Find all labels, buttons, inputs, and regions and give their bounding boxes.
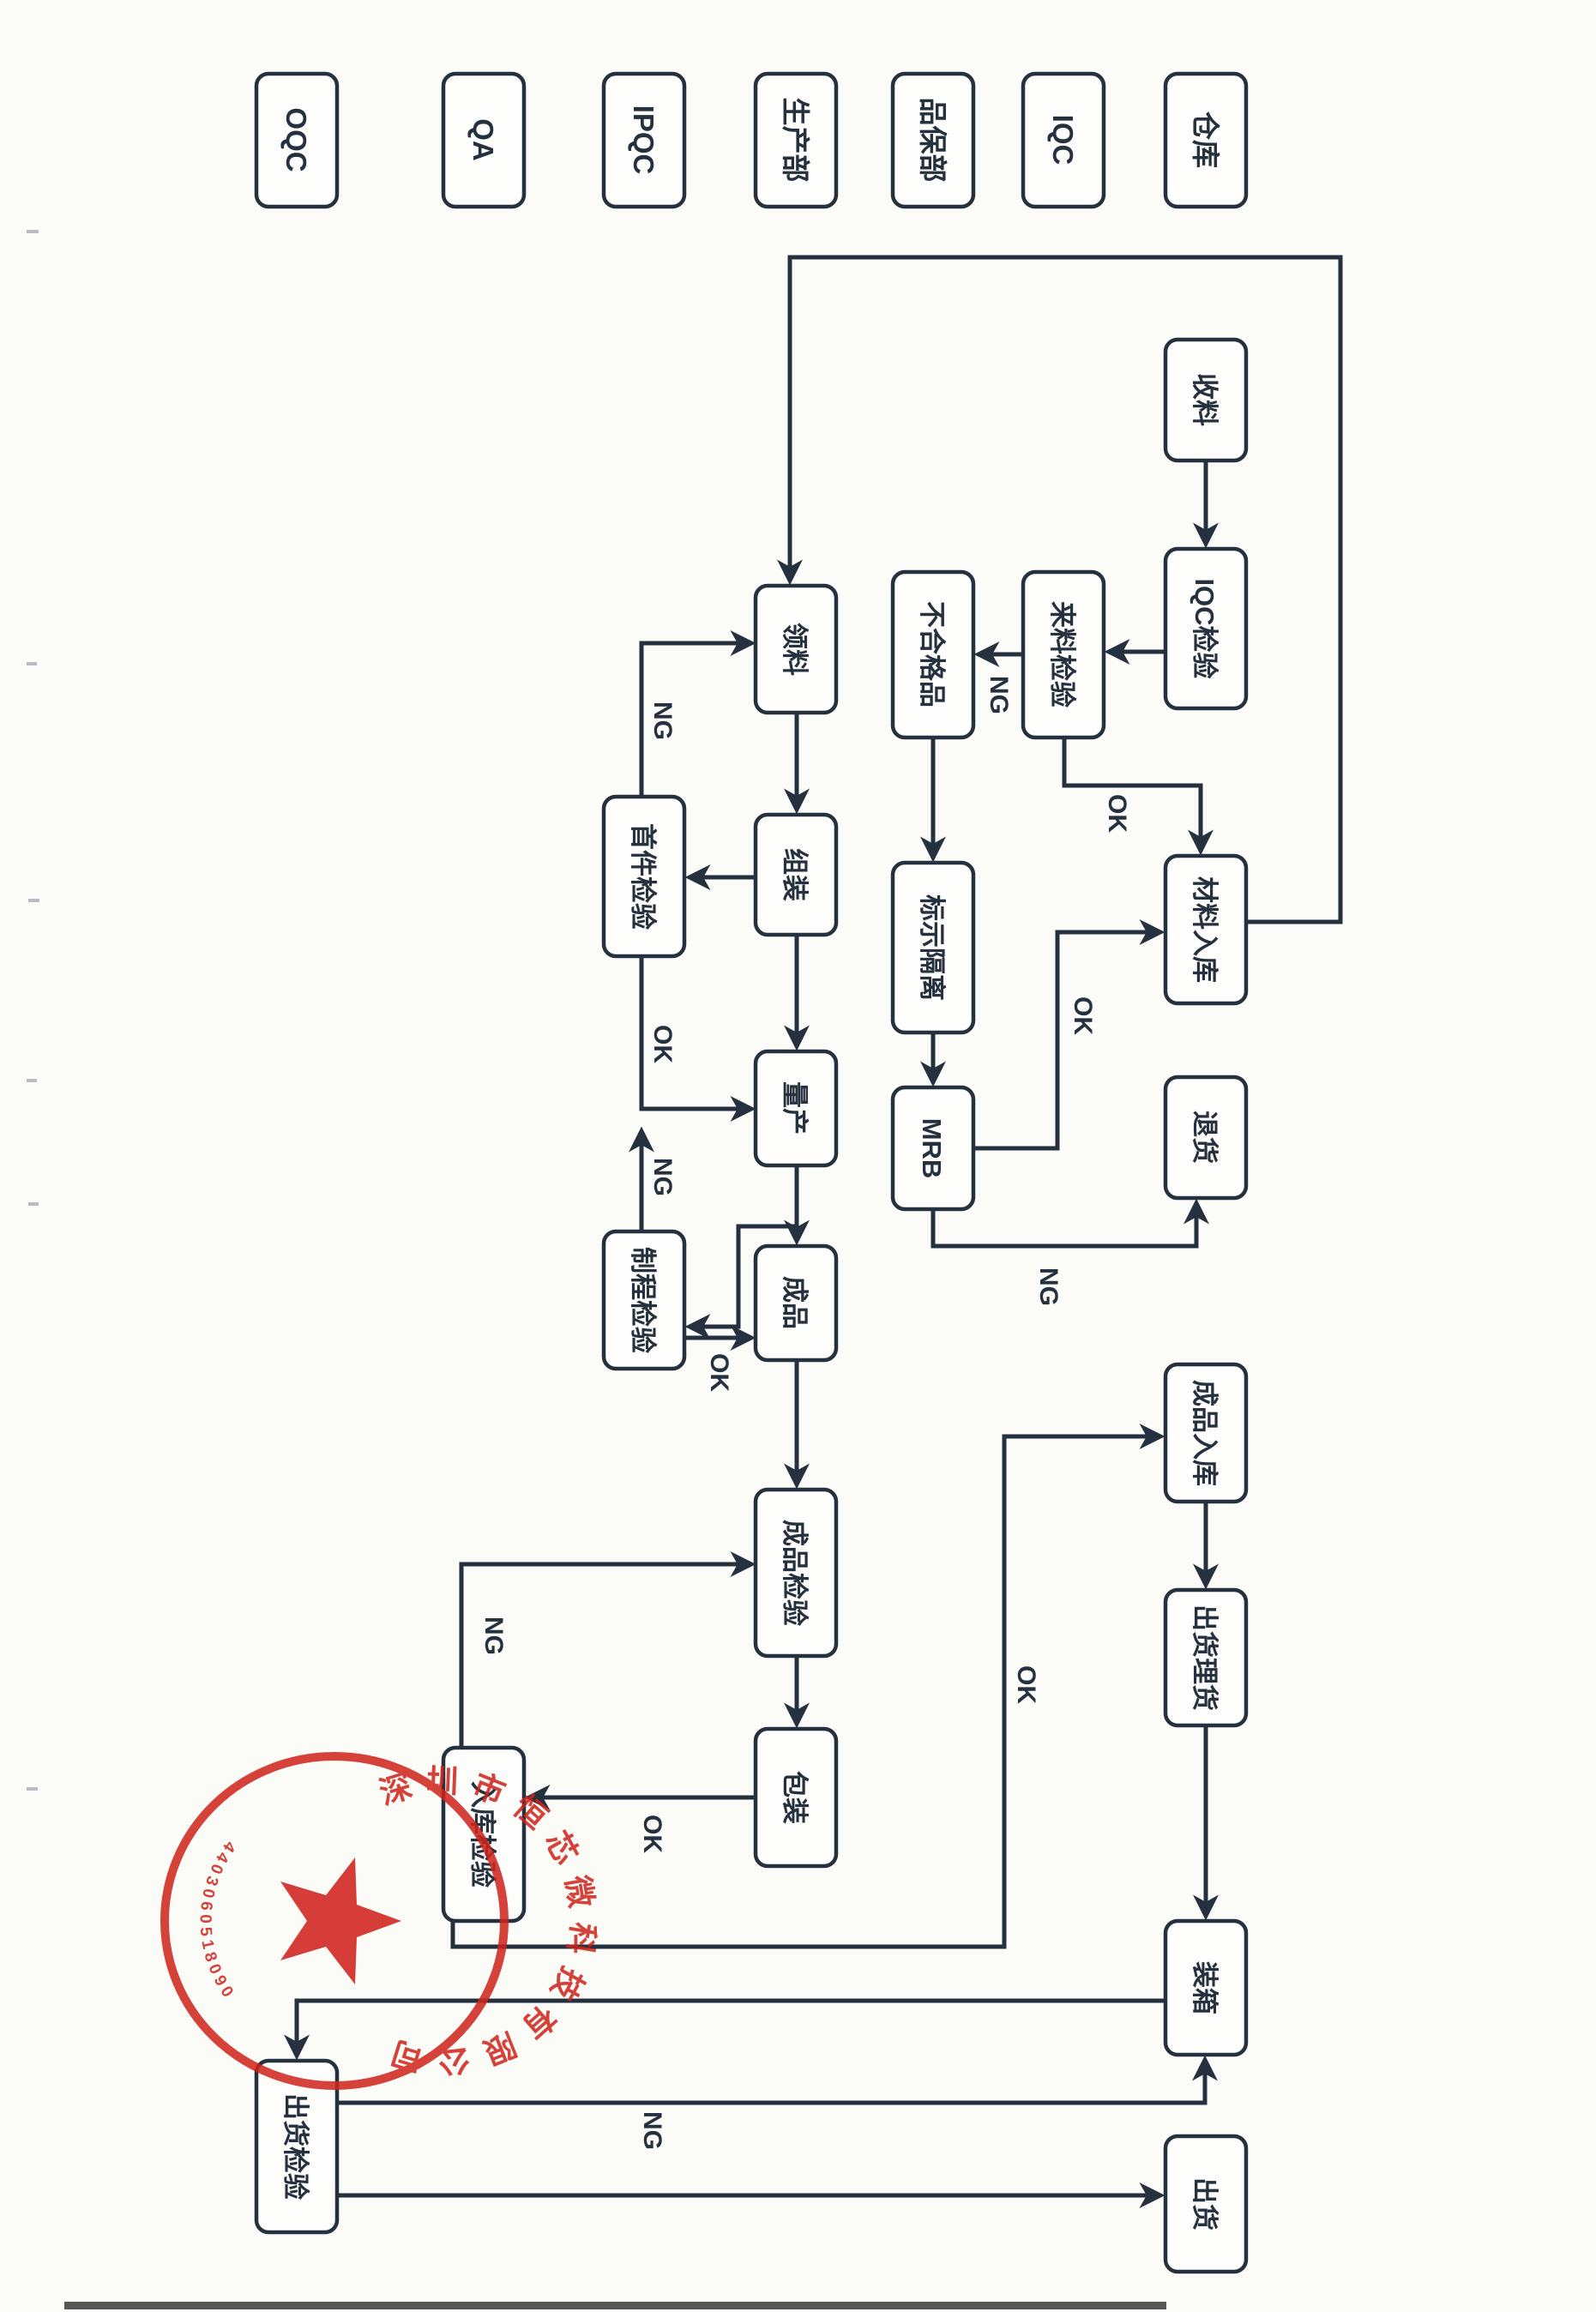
node-nonconforming-product: 不合格品 xyxy=(893,572,973,738)
node-material-warehousing: 材料入库 xyxy=(1165,856,1246,1003)
svg-text:IQC检验: IQC检验 xyxy=(1189,578,1220,678)
node-finished-product-inspection: 成品检验 xyxy=(756,1490,836,1656)
lane-header-warehouse: 仓库 xyxy=(1165,74,1246,207)
svg-text:材料入库: 材料入库 xyxy=(1189,876,1220,983)
label-incoming-ng: NG xyxy=(985,676,1013,714)
label-inprocess-ng: NG xyxy=(648,1158,677,1196)
svg-text:出货检验: 出货检验 xyxy=(280,2093,310,2200)
lane-header-production-dept: 生产部 xyxy=(756,74,836,207)
lane-header-iqc: IQC xyxy=(1023,74,1104,207)
node-finished-product: 成品 xyxy=(756,1246,836,1360)
svg-text:出货理货: 出货理货 xyxy=(1189,1605,1220,1711)
node-assembly: 组装 xyxy=(756,815,836,935)
label-first-article-ok: OK xyxy=(648,1025,677,1063)
svg-text:IPQC: IPQC xyxy=(628,105,659,175)
node-shipping-tally: 出货理货 xyxy=(1165,1590,1246,1725)
flow-nodes: 收料 IQC检验 材料入库 退货 成品入库 xyxy=(256,340,1246,2272)
svg-text:装箱: 装箱 xyxy=(1189,1961,1220,2014)
scan-artifacts xyxy=(27,230,1166,2309)
seal-serial-number: 4403060518090 xyxy=(196,1838,239,2004)
node-shipment: 出货 xyxy=(1165,2136,1246,2272)
label-incoming-ok: OK xyxy=(1103,794,1131,833)
svg-text:仓库: 仓库 xyxy=(1189,111,1221,168)
svg-text:成品: 成品 xyxy=(780,1276,810,1329)
label-packaging-ok: OK xyxy=(638,1815,666,1853)
scan-edge-shadow xyxy=(64,2302,1166,2309)
node-carton-packing: 装箱 xyxy=(1165,1921,1246,2055)
flowchart-svg: 仓库 IQC 品保部 生产部 IPQC xyxy=(0,0,1596,2312)
svg-text:生产部: 生产部 xyxy=(780,98,811,183)
edge-incoming-ok-to-material-warehousing xyxy=(1064,738,1201,849)
company-seal-stamp: 深圳市恒芯微科技有限公司 4403060518090 xyxy=(165,1756,601,2086)
lane-header-ipqc: IPQC xyxy=(604,74,684,207)
svg-text:收料: 收料 xyxy=(1189,373,1220,426)
node-incoming-inspection: 来料检验 xyxy=(1023,572,1104,738)
node-iqc-inspection: IQC检验 xyxy=(1165,549,1246,708)
svg-text:标示隔离: 标示隔离 xyxy=(917,894,947,1001)
svg-text:成品检验: 成品检验 xyxy=(780,1520,810,1626)
edge-mrb-ok-to-material-warehousing xyxy=(973,932,1159,1148)
node-mark-quarantine: 标示隔离 xyxy=(893,863,973,1033)
star-icon xyxy=(280,1857,401,1984)
label-warehousing-ok: OK xyxy=(1012,1665,1040,1704)
label-warehousing-ng: NG xyxy=(479,1617,508,1655)
svg-text:不合格品: 不合格品 xyxy=(917,601,947,707)
svg-text:退货: 退货 xyxy=(1189,1111,1220,1164)
svg-text:QA: QA xyxy=(467,118,499,161)
svg-text:出货: 出货 xyxy=(1189,2177,1220,2231)
svg-text:组装: 组装 xyxy=(780,848,810,901)
svg-text:领料: 领料 xyxy=(780,623,810,676)
svg-text:量产: 量产 xyxy=(780,1081,810,1135)
node-mrb: MRB xyxy=(893,1087,973,1209)
node-finished-goods-warehousing: 成品入库 xyxy=(1165,1364,1246,1502)
lane-header-qa: QA xyxy=(443,74,524,207)
label-first-article-ng: NG xyxy=(648,701,677,740)
svg-text:IQC: IQC xyxy=(1047,115,1079,166)
lane-headers: 仓库 IQC 品保部 生产部 IPQC xyxy=(256,74,1246,207)
node-return-goods: 退货 xyxy=(1165,1077,1246,1198)
edge-warehousing-ng-to-finished-inspection xyxy=(461,1564,750,1748)
node-inprocess-inspection: 制程检验 xyxy=(604,1231,684,1369)
svg-text:制程检验: 制程检验 xyxy=(628,1247,658,1353)
edge-mrb-ng-to-returns xyxy=(933,1205,1196,1246)
svg-text:OQC: OQC xyxy=(280,107,312,172)
label-mrb-ng: NG xyxy=(1034,1267,1063,1306)
node-receive-material: 收料 xyxy=(1165,340,1246,461)
svg-text:包装: 包装 xyxy=(780,1771,810,1824)
lane-header-oqc: OQC xyxy=(256,74,337,207)
scanned-page: 仓库 IQC 品保部 生产部 IPQC xyxy=(0,0,1596,2312)
node-material-requisition: 领料 xyxy=(756,586,836,713)
node-first-article-inspection: 首件检验 xyxy=(604,797,684,956)
svg-text:来料检验: 来料检验 xyxy=(1047,601,1077,707)
label-outgoing-ng: NG xyxy=(638,2111,666,2150)
svg-text:成品入库: 成品入库 xyxy=(1189,1380,1220,1486)
node-packaging: 包装 xyxy=(756,1729,836,1866)
svg-text:首件检验: 首件检验 xyxy=(628,823,658,930)
svg-text:MRB: MRB xyxy=(917,1118,947,1179)
lane-header-quality-dept: 品保部 xyxy=(893,74,973,207)
label-inprocess-ok: OK xyxy=(705,1353,733,1392)
label-mrb-ok: OK xyxy=(1069,996,1097,1035)
flowchart-canvas: 仓库 IQC 品保部 生产部 IPQC xyxy=(0,0,1596,2312)
node-mass-production: 量产 xyxy=(756,1051,836,1165)
svg-text:品保部: 品保部 xyxy=(917,98,949,183)
